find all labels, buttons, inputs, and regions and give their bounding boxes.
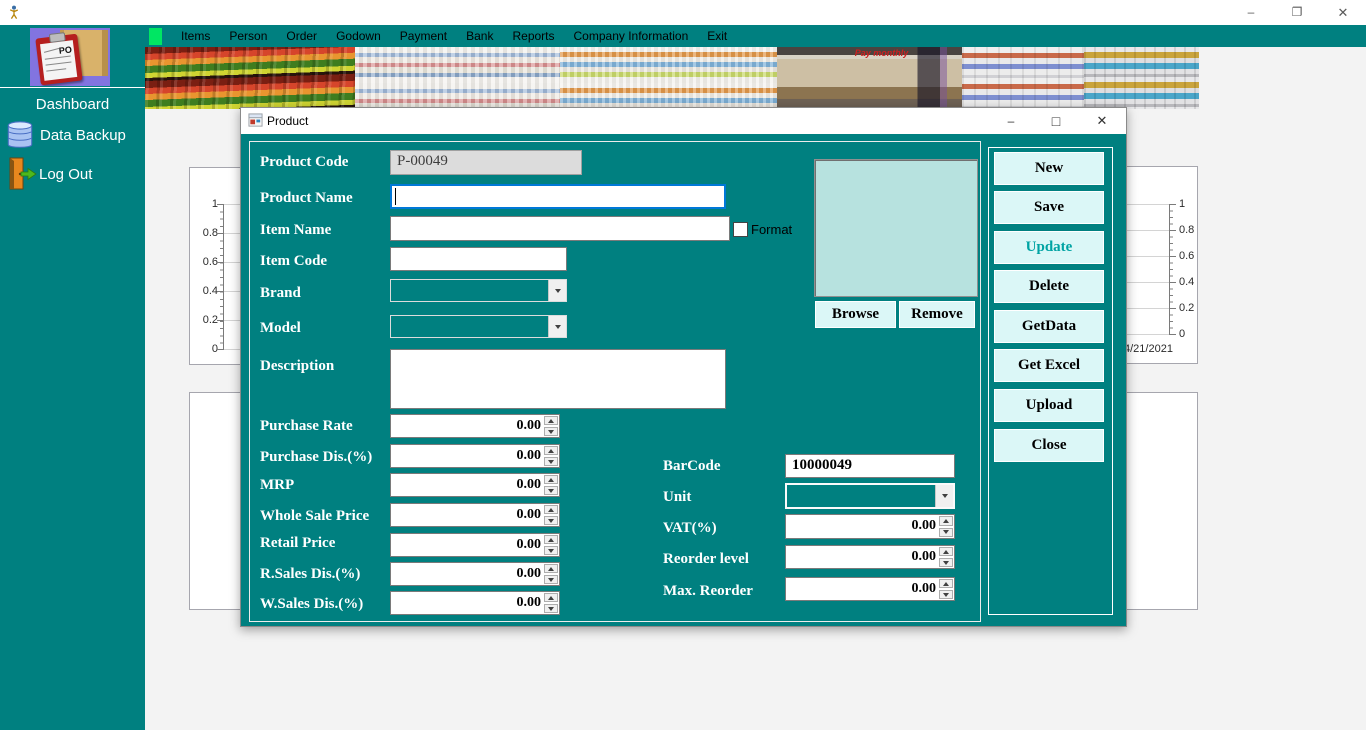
phone-store-caption: Pay monthly bbox=[855, 48, 909, 58]
chevron-down-icon[interactable] bbox=[548, 280, 566, 301]
spin-up-button[interactable] bbox=[544, 416, 558, 425]
brand-combobox[interactable] bbox=[390, 279, 567, 302]
product-name-label: Product Name bbox=[260, 189, 353, 207]
brand-label: Brand bbox=[260, 284, 301, 302]
max-reorder-field[interactable]: 0.00 bbox=[785, 577, 955, 601]
menu-green-badge bbox=[149, 28, 162, 45]
purchase-dis-label: Purchase Dis.(%) bbox=[260, 448, 372, 466]
menu-item-bank[interactable]: Bank bbox=[466, 29, 493, 43]
update-button[interactable]: Update bbox=[994, 231, 1104, 264]
spin-up-button[interactable] bbox=[544, 505, 558, 514]
y-tick: 0.6 bbox=[1179, 250, 1194, 262]
text-caret bbox=[395, 188, 396, 205]
menu-item-order[interactable]: Order bbox=[286, 29, 317, 43]
chevron-down-icon[interactable] bbox=[548, 316, 566, 337]
dashboard-label: Dashboard bbox=[36, 96, 109, 113]
sidebar-item-data-backup[interactable]: Data Backup bbox=[0, 117, 145, 153]
app-logo: PO bbox=[30, 28, 110, 86]
spin-up-button[interactable] bbox=[939, 516, 953, 526]
model-combobox[interactable] bbox=[390, 315, 567, 338]
barcode-label: BarCode bbox=[663, 457, 721, 475]
product-code-field: P-00049 bbox=[390, 150, 582, 175]
close-button[interactable]: Close bbox=[994, 429, 1104, 462]
banner-image-beverage-aisle bbox=[560, 47, 777, 109]
product-code-label: Product Code bbox=[260, 153, 348, 171]
menu-item-godown[interactable]: Godown bbox=[336, 29, 381, 43]
menu-item-exit[interactable]: Exit bbox=[707, 29, 727, 43]
dialog-title: Product bbox=[267, 114, 308, 128]
purchase-rate-field[interactable]: 0.00 bbox=[390, 414, 560, 438]
y-tick: 0.4 bbox=[1179, 276, 1194, 288]
barcode-field[interactable]: 10000049 bbox=[785, 454, 955, 478]
store-photo-banner: Pay monthly bbox=[145, 47, 1199, 109]
window-minimize-button[interactable]: – bbox=[1228, 0, 1274, 25]
retail-price-field[interactable]: 0.00 bbox=[390, 533, 560, 557]
r-sales-dis-label: R.Sales Dis.(%) bbox=[260, 565, 360, 583]
y-tick: 0.8 bbox=[203, 227, 218, 239]
w-sales-dis-field[interactable]: 0.00 bbox=[390, 591, 560, 615]
y-tick: 0.6 bbox=[203, 256, 218, 268]
sidebar: PO Dashboard Data Backup bbox=[0, 25, 145, 730]
format-checkbox[interactable] bbox=[733, 222, 748, 237]
spinner bbox=[543, 504, 559, 526]
banner-image-dairy-aisle bbox=[355, 47, 560, 109]
vat-label: VAT(%) bbox=[663, 519, 717, 537]
window-restore-button[interactable]: ❐ bbox=[1274, 0, 1320, 25]
dialog-close-button[interactable]: ✕ bbox=[1087, 108, 1117, 134]
spin-up-button[interactable] bbox=[544, 475, 558, 484]
spinner bbox=[938, 515, 954, 538]
item-name-field[interactable] bbox=[390, 216, 730, 241]
whole-sale-price-field[interactable]: 0.00 bbox=[390, 503, 560, 527]
mrp-label: MRP bbox=[260, 476, 294, 494]
spin-down-button[interactable] bbox=[939, 558, 953, 567]
description-label: Description bbox=[260, 357, 334, 375]
data-backup-label: Data Backup bbox=[40, 127, 126, 144]
new-button[interactable]: New bbox=[994, 152, 1104, 185]
logo-text: PO bbox=[58, 44, 72, 56]
database-icon bbox=[3, 118, 37, 152]
product-form-panel: Product Code P-00049 Product Name Item N… bbox=[249, 141, 981, 622]
menu-item-reports[interactable]: Reports bbox=[512, 29, 554, 43]
spin-up-button[interactable] bbox=[939, 579, 953, 588]
description-field[interactable] bbox=[390, 349, 726, 409]
y-tick: 1 bbox=[1179, 198, 1185, 210]
spinner bbox=[543, 445, 559, 467]
reorder-level-field[interactable]: 0.00 bbox=[785, 545, 955, 569]
banner-image-accessory-shelves-2 bbox=[1084, 47, 1199, 109]
spin-down-button[interactable] bbox=[544, 546, 558, 555]
dialog-maximize-button[interactable]: □ bbox=[1041, 108, 1071, 134]
x-axis-date-label: 4/21/2021 bbox=[1124, 343, 1173, 355]
r-sales-dis-field[interactable]: 0.00 bbox=[390, 562, 560, 586]
spin-up-button[interactable] bbox=[939, 547, 953, 556]
product-dialog: Product – □ ✕ Product Code P-00049 Produ… bbox=[240, 107, 1127, 627]
spinner bbox=[543, 474, 559, 496]
menu-item-company-information[interactable]: Company Information bbox=[574, 29, 689, 43]
spin-down-button[interactable] bbox=[544, 575, 558, 584]
spin-down-button[interactable] bbox=[939, 528, 953, 538]
banner-image-phone-store: Pay monthly bbox=[777, 47, 962, 109]
model-label: Model bbox=[260, 319, 301, 337]
product-name-field[interactable] bbox=[390, 184, 726, 209]
spin-down-button[interactable] bbox=[544, 427, 558, 436]
purchase-rate-label: Purchase Rate bbox=[260, 417, 353, 435]
spin-down-button[interactable] bbox=[544, 457, 558, 466]
y-tick: 0.8 bbox=[1179, 224, 1194, 236]
max-reorder-label: Max. Reorder bbox=[663, 582, 753, 600]
upload-button[interactable]: Upload bbox=[994, 389, 1104, 422]
sidebar-divider bbox=[0, 87, 145, 88]
spin-down-button[interactable] bbox=[544, 604, 558, 613]
product-image-box bbox=[814, 159, 978, 297]
purchase-dis-field[interactable]: 0.00 bbox=[390, 444, 560, 468]
whole-sale-price-label: Whole Sale Price bbox=[260, 507, 369, 525]
y-tick: 0.2 bbox=[1179, 302, 1194, 314]
logout-icon bbox=[7, 156, 37, 192]
spinner bbox=[938, 578, 954, 600]
format-checkbox-label: Format bbox=[751, 222, 792, 237]
action-buttons-panel: New Save Update Delete GetData Get Excel… bbox=[988, 147, 1113, 615]
item-code-field[interactable] bbox=[390, 247, 567, 271]
product-dialog-titlebar: Product – □ ✕ bbox=[241, 108, 1126, 134]
spin-up-button[interactable] bbox=[544, 535, 558, 544]
w-sales-dis-label: W.Sales Dis.(%) bbox=[260, 595, 363, 613]
spinner bbox=[543, 592, 559, 614]
y-tick: 0 bbox=[1179, 328, 1185, 340]
sidebar-item-log-out[interactable]: Log Out bbox=[0, 155, 145, 193]
spin-down-button[interactable] bbox=[544, 516, 558, 525]
spin-down-button[interactable] bbox=[939, 590, 953, 599]
spin-up-button[interactable] bbox=[544, 564, 558, 573]
item-code-label: Item Code bbox=[260, 252, 327, 270]
unit-label: Unit bbox=[663, 488, 691, 506]
banner-image-accessory-shelves-1 bbox=[962, 47, 1084, 109]
retail-price-label: Retail Price bbox=[260, 534, 335, 552]
item-name-label: Item Name bbox=[260, 221, 331, 239]
save-button[interactable]: Save bbox=[994, 191, 1104, 224]
dialog-minimize-button[interactable]: – bbox=[996, 108, 1026, 134]
menubar: Items Person Order Godown Payment Bank R… bbox=[145, 25, 1366, 47]
menu-item-payment[interactable]: Payment bbox=[400, 29, 447, 43]
window-titlebar: – ❐ ✕ bbox=[0, 0, 1366, 25]
banner-image-produce bbox=[145, 47, 355, 109]
form-icon bbox=[248, 113, 263, 133]
delete-button[interactable]: Delete bbox=[994, 270, 1104, 303]
chevron-down-icon[interactable] bbox=[935, 485, 953, 507]
spin-down-button[interactable] bbox=[544, 486, 558, 495]
spinner bbox=[543, 415, 559, 437]
menu-item-person[interactable]: Person bbox=[229, 29, 267, 43]
spinner bbox=[543, 534, 559, 556]
spinner bbox=[938, 546, 954, 568]
get-excel-button[interactable]: Get Excel bbox=[994, 349, 1104, 382]
spin-up-button[interactable] bbox=[544, 593, 558, 602]
vat-field[interactable]: 0.00 bbox=[785, 514, 955, 539]
clipboard-icon: PO bbox=[35, 34, 82, 86]
browse-button[interactable]: Browse bbox=[815, 301, 896, 328]
app-icon bbox=[6, 4, 22, 20]
getdata-button[interactable]: GetData bbox=[994, 310, 1104, 343]
mrp-field[interactable]: 0.00 bbox=[390, 473, 560, 497]
y-tick: 0.4 bbox=[203, 285, 218, 297]
log-out-label: Log Out bbox=[39, 166, 92, 183]
reorder-level-label: Reorder level bbox=[663, 550, 749, 568]
unit-combobox[interactable] bbox=[785, 483, 955, 509]
sidebar-item-dashboard[interactable]: Dashboard bbox=[0, 93, 145, 115]
remove-button[interactable]: Remove bbox=[899, 301, 975, 328]
menu-item-items[interactable]: Items bbox=[181, 29, 210, 43]
spin-up-button[interactable] bbox=[544, 446, 558, 455]
window-close-button[interactable]: ✕ bbox=[1320, 0, 1366, 25]
spinner bbox=[543, 563, 559, 585]
y-tick: 0.2 bbox=[203, 314, 218, 326]
